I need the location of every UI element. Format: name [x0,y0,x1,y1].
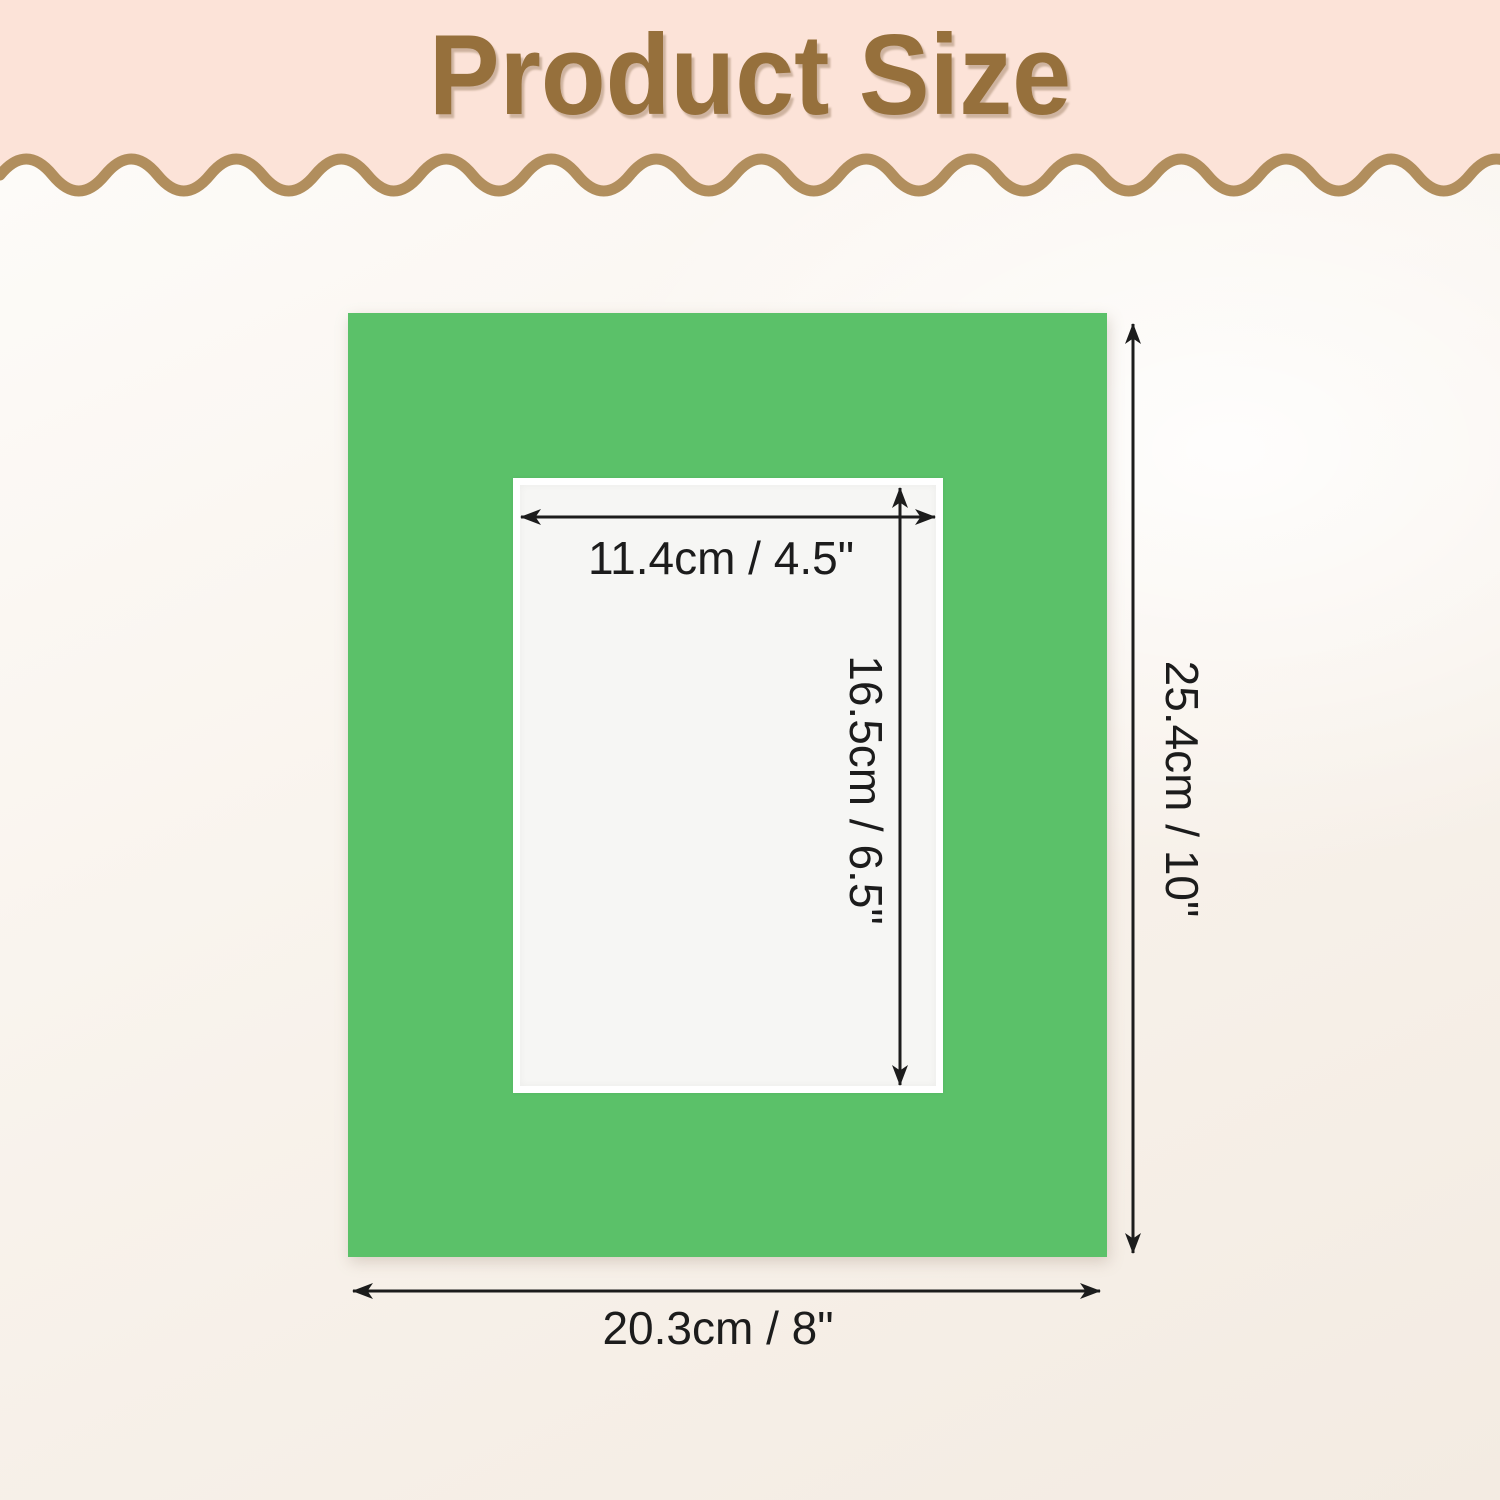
wave-border-line [0,159,1500,191]
page-title: Product Size [53,0,1448,150]
outer-height-label: 25.4cm / 10" [1156,639,1208,939]
product-size-infographic: Product Size 11.4cm / 4.5" 16.5cm / 6.5"… [0,0,1500,1500]
inner-height-label: 16.5cm / 6.5" [840,640,892,940]
inner-width-label: 11.4cm / 4.5" [521,532,921,584]
outer-width-label: 20.3cm / 8" [518,1302,918,1354]
